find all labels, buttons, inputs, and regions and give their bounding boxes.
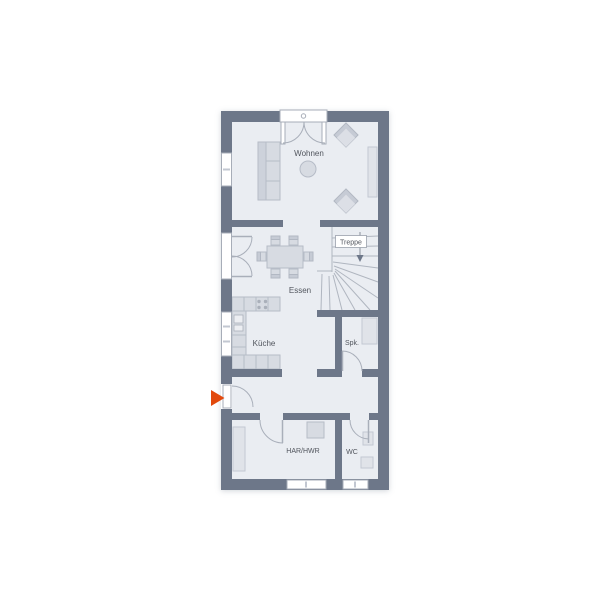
- room-label-har-hwr: HAR/HWR: [286, 448, 319, 455]
- entrance-door-leaf: [223, 385, 231, 408]
- washer: [307, 422, 324, 438]
- room-label-kueche: Küche: [253, 339, 276, 348]
- shelf-unit: [258, 142, 280, 200]
- garden-door-frame: [222, 233, 232, 279]
- room-label-wohnen: Wohnen: [294, 149, 324, 158]
- room-label-treppe: Treppe: [340, 240, 362, 247]
- window: [343, 480, 368, 489]
- room-label-essen: Essen: [289, 286, 311, 295]
- wc-toilet: [361, 457, 373, 468]
- pantry-shelf: [362, 318, 377, 344]
- floor-plan: Wohnen Essen Treppe Küche Spk. HAR/HWR W…: [0, 0, 600, 600]
- window: [222, 153, 232, 186]
- room-label-spk: Spk.: [345, 340, 359, 347]
- room-label-wc: WC: [346, 449, 358, 456]
- utility-cupboard: [233, 427, 245, 471]
- floor-plan-canvas: Wohnen Essen Treppe Küche Spk. HAR/HWR W…: [0, 0, 600, 600]
- window: [287, 480, 326, 489]
- window: [222, 312, 232, 356]
- side-table: [300, 161, 316, 177]
- sideboard: [368, 147, 377, 197]
- door-knob-icon: [301, 114, 305, 118]
- sink-icon: [234, 315, 243, 331]
- dining-table: [267, 246, 303, 268]
